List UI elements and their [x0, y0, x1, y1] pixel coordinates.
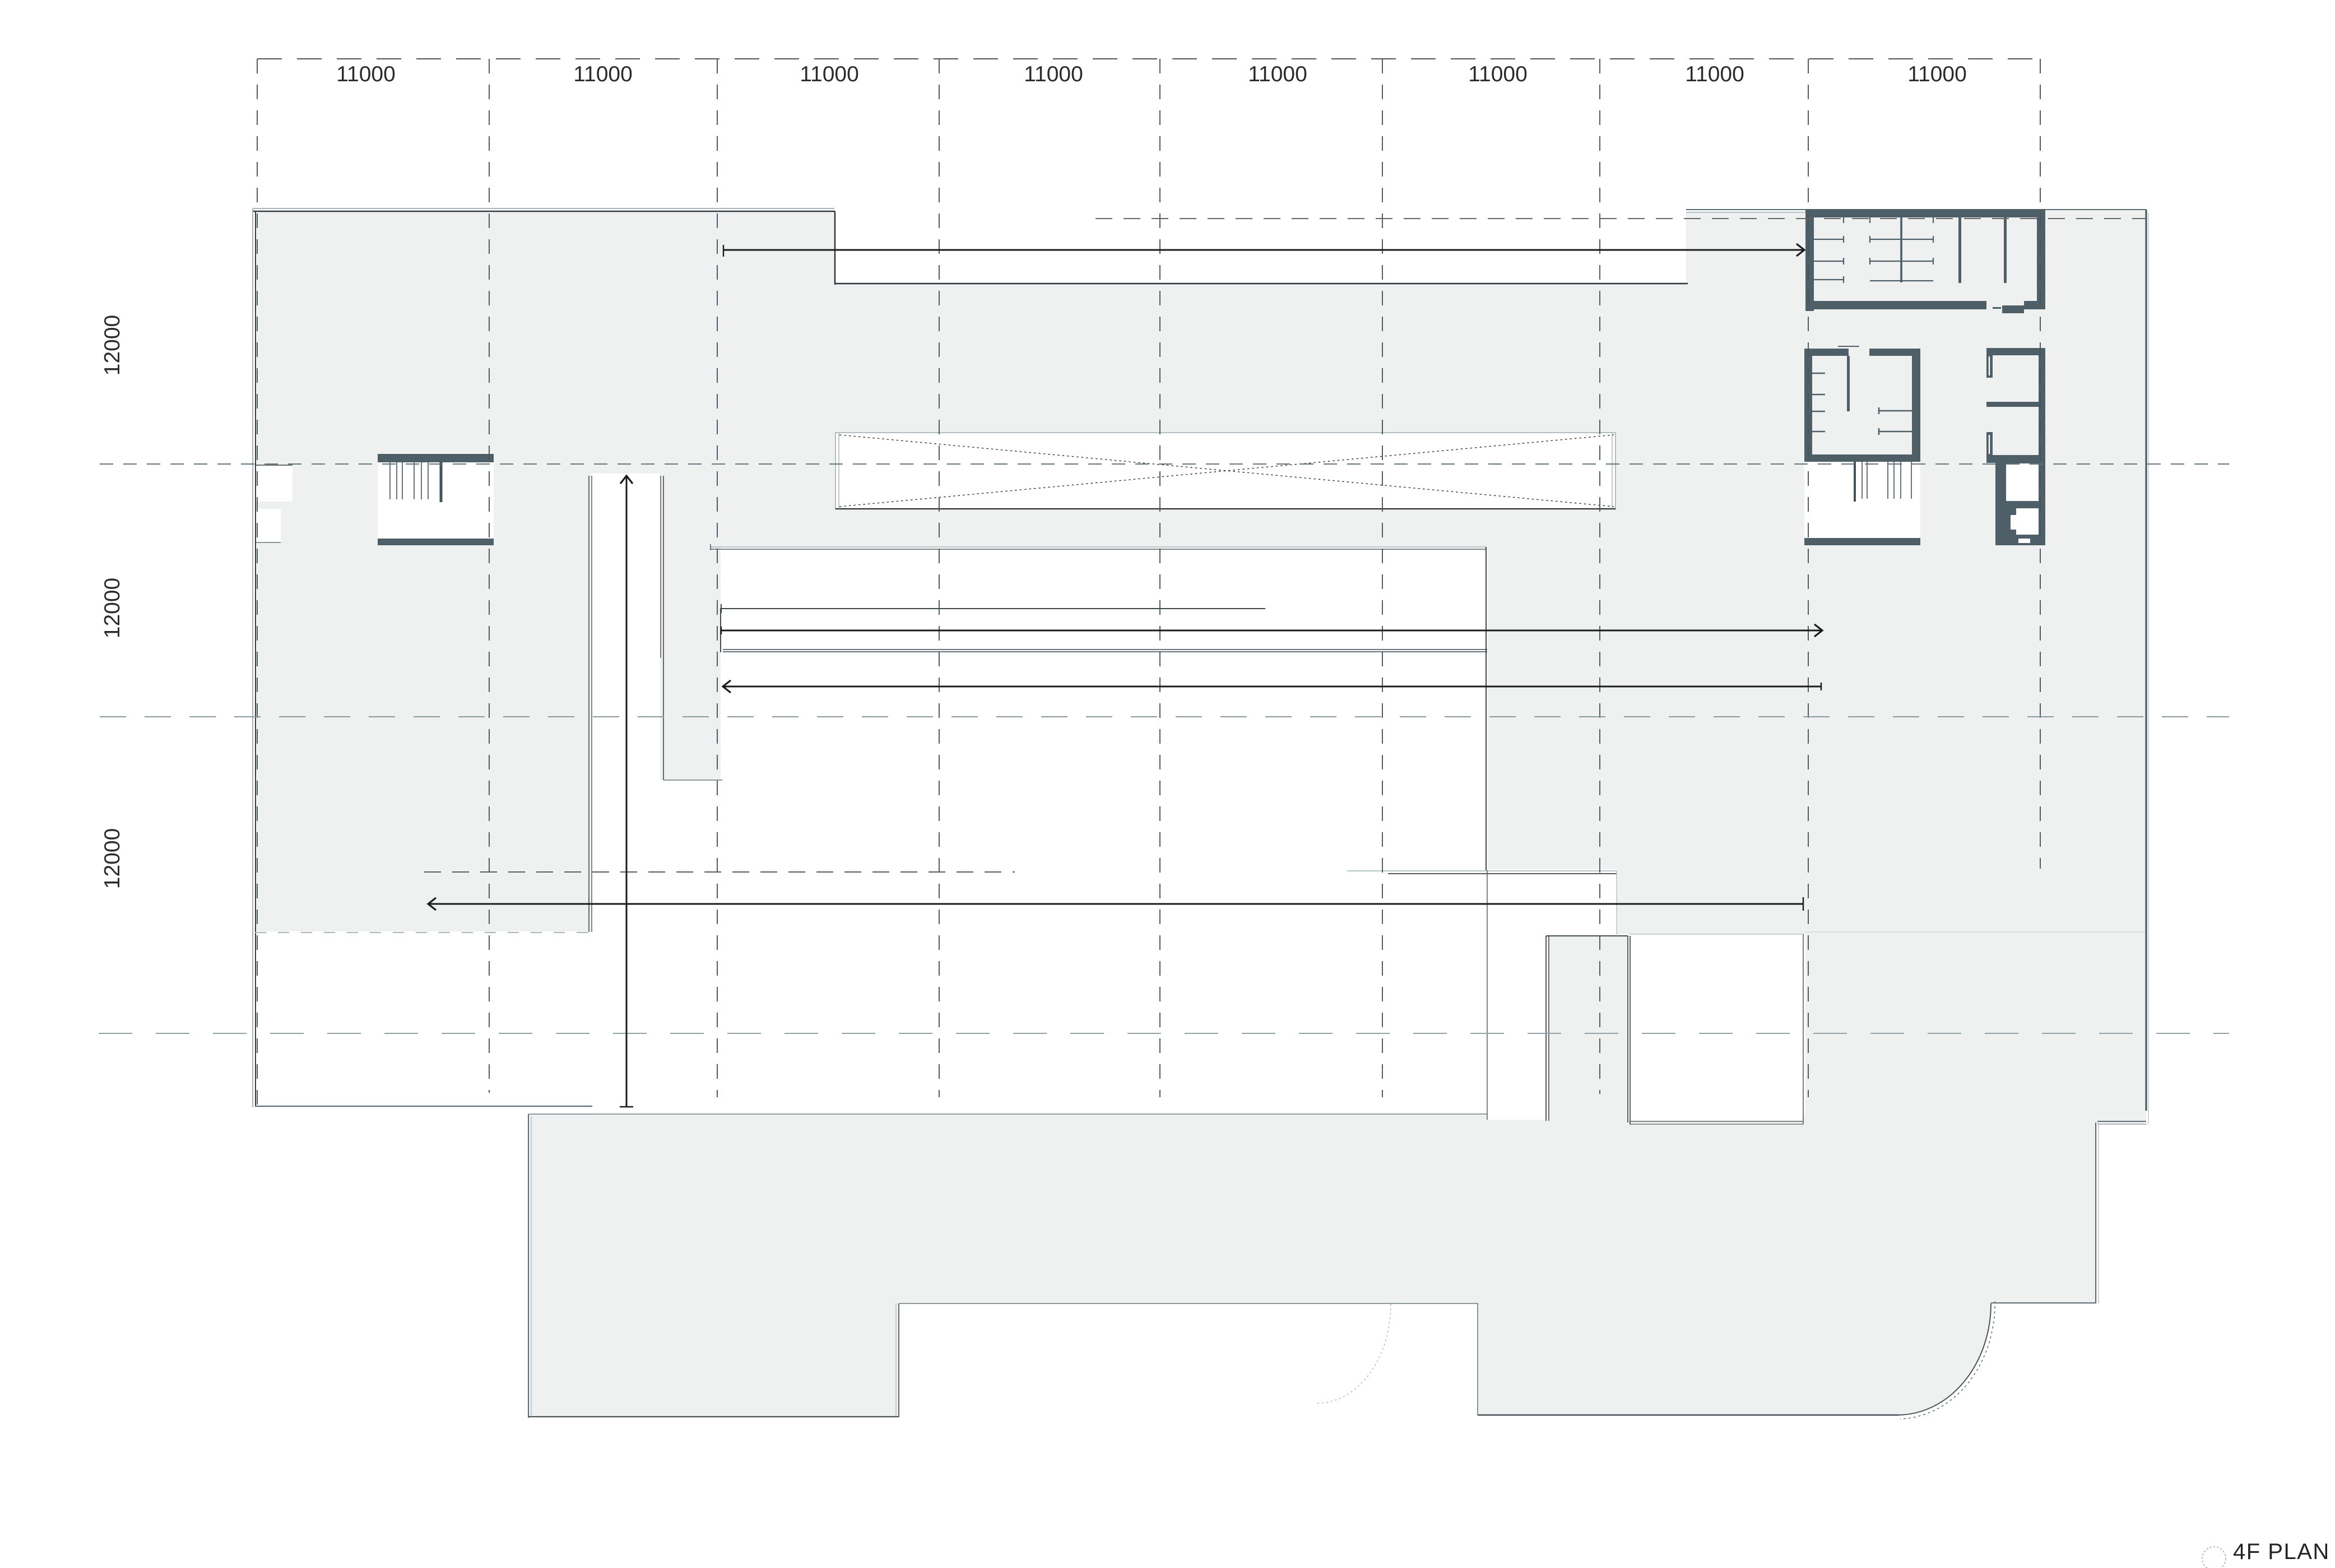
svg-text:11000: 11000	[573, 62, 633, 86]
svg-text:12000: 12000	[100, 315, 124, 375]
svg-text:11000: 11000	[800, 62, 859, 86]
svg-text:11000: 11000	[336, 62, 396, 86]
svg-text:11000: 11000	[1685, 62, 1744, 86]
svg-text:4F PLAN: 4F PLAN	[2233, 1539, 2330, 1564]
svg-text:11000: 11000	[1248, 62, 1307, 86]
svg-text:12000: 12000	[100, 828, 124, 889]
svg-text:11000: 11000	[1468, 62, 1528, 86]
svg-text:11000: 11000	[1907, 62, 1967, 86]
svg-text:11000: 11000	[1024, 62, 1083, 86]
svg-text:12000: 12000	[100, 578, 124, 638]
